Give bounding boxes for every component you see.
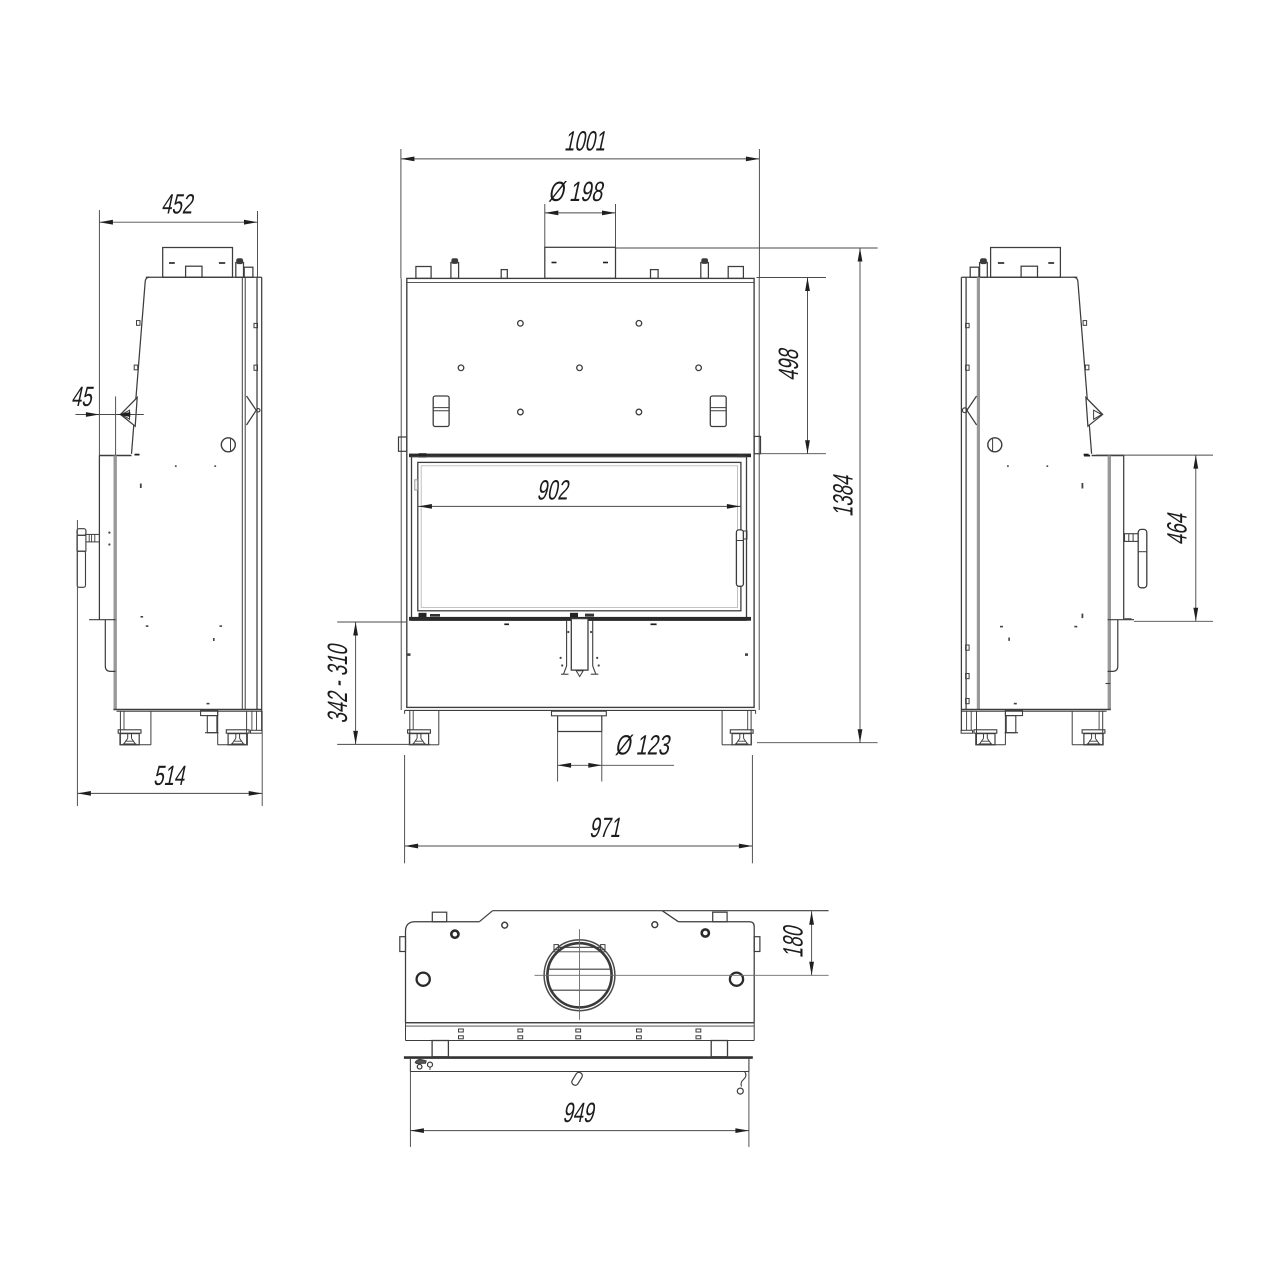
svg-text:342 - 310: 342 - 310 xyxy=(321,640,353,725)
svg-text:Ø 123: Ø 123 xyxy=(613,729,674,761)
svg-text:1001: 1001 xyxy=(563,125,611,157)
svg-text:Ø 198: Ø 198 xyxy=(547,175,608,207)
svg-text:1384: 1384 xyxy=(827,471,859,519)
